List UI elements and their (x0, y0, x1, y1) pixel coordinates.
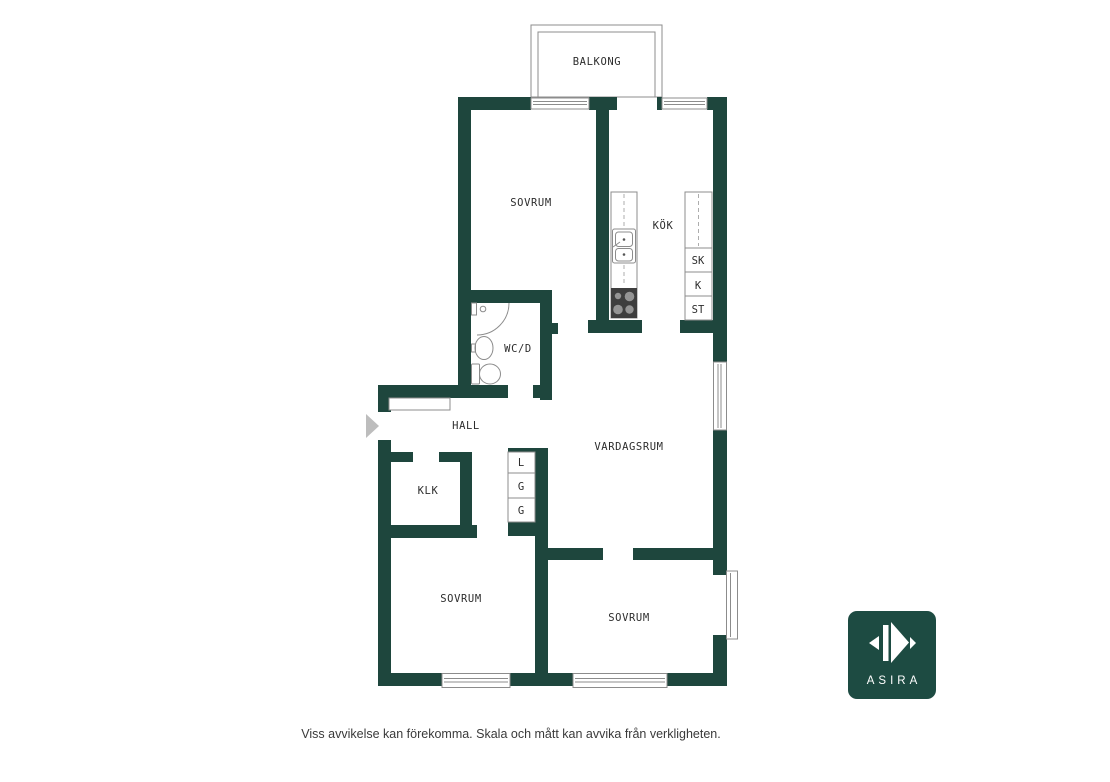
cabinet-st-label: ST (692, 304, 705, 316)
balcony-label: BALKONG (573, 56, 621, 68)
window-bedroom-top (531, 98, 589, 109)
washbasin-icon (472, 337, 494, 360)
window-kitchen (662, 98, 707, 109)
asira-logo-text: ASIRA (867, 675, 922, 687)
shower-icon (477, 303, 509, 335)
window-bedroom-left (442, 674, 510, 688)
bedroom-right-label: SOVRUM (608, 612, 650, 624)
kitchen-label: KÖK (653, 219, 674, 232)
bedroom-left-label: SOVRUM (440, 593, 482, 605)
window-bedroom-right (573, 674, 667, 688)
entrance-door-leaf (389, 398, 450, 410)
walls (378, 97, 727, 686)
entrance-arrow-icon (366, 414, 379, 438)
bay-window-bedroom-right (727, 571, 738, 639)
klk-label: KLK (418, 485, 439, 497)
cabinet-k-label: K (695, 280, 702, 292)
wc-label: WC/D (504, 343, 532, 355)
floorplan-page: BALKONG SOVRUM KÖK SK K ST WC/D HALL VAR… (0, 0, 1110, 782)
stove-icon (611, 288, 637, 318)
floorplan-canvas: BALKONG SOVRUM KÖK SK K ST WC/D HALL VAR… (0, 0, 1110, 782)
asira-logo: ASIRA (848, 611, 936, 699)
closet-l-label: L (518, 457, 524, 469)
living-room-label: VARDAGSRUM (594, 441, 663, 453)
cabinet-sk-label: SK (692, 255, 705, 267)
toilet-icon (472, 364, 501, 384)
bedroom-top-label: SOVRUM (510, 197, 552, 209)
closet-g2-label: G (518, 505, 524, 517)
window-living-room (714, 362, 727, 430)
disclaimer-text: Viss avvikelse kan förekomma. Skala och … (301, 727, 720, 741)
hall-label: HALL (452, 420, 480, 432)
closet-g1-label: G (518, 481, 524, 493)
